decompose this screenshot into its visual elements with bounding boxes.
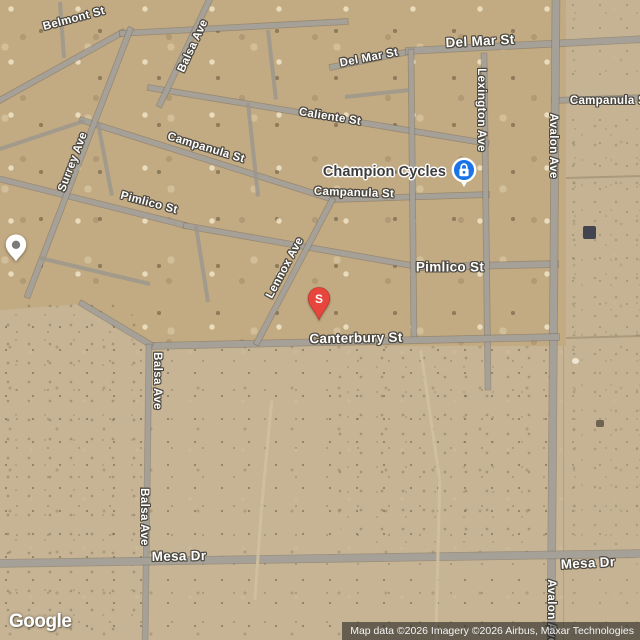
lock-icon[interactable] <box>448 156 480 196</box>
street-label-belmont-st: Belmont St <box>42 5 107 33</box>
dropped-pin-s[interactable]: S <box>306 286 332 323</box>
street-label-mesa-dr: Mesa Dr <box>152 548 207 564</box>
pin-letter: S <box>315 292 323 306</box>
street-label-del-mar-st: Del Mar St <box>445 32 515 51</box>
street-label-canterbury-st: Canterbury St <box>309 330 402 347</box>
poi-label-champion-cycles[interactable]: Champion Cycles <box>323 164 446 180</box>
street-label-pimlico-st: Pimlico St <box>416 260 484 275</box>
google-logo[interactable]: Google <box>9 611 71 633</box>
street-label-mesa-dr: Mesa Dr <box>560 554 615 572</box>
map-attribution: Map data ©2026 Imagery ©2026 Airbus, Max… <box>342 622 640 640</box>
white-map-pin[interactable] <box>2 232 30 264</box>
street-label-lennox-ave: Lennox Ave <box>264 235 306 300</box>
street-label-del-mar-st: Del Mar St <box>339 46 399 69</box>
street-label-pimlico-st: Pimlico St <box>119 190 179 217</box>
street-label-campanula-st: Campanula St <box>314 186 395 201</box>
street-label-caliente-st: Caliente St <box>298 106 362 128</box>
street-label-avalon-ave: Avalon Ave <box>547 113 559 178</box>
street-label-balsa-ave: Balsa Ave <box>151 352 163 410</box>
map-canvas[interactable]: Belmont StBalsa AveDel Mar StDel Mar StC… <box>0 0 640 640</box>
street-label-campanula-st: Campanula St <box>166 131 246 166</box>
street-label-campanula-st: Campanula St <box>570 95 640 107</box>
street-label-surrey-ave: Surrey Ave <box>56 130 90 193</box>
street-label-lexington-ave: Lexington Ave <box>475 68 487 152</box>
street-label-balsa-ave: Balsa Ave <box>138 488 150 546</box>
street-label-balsa-ave: Balsa Ave <box>176 18 211 75</box>
